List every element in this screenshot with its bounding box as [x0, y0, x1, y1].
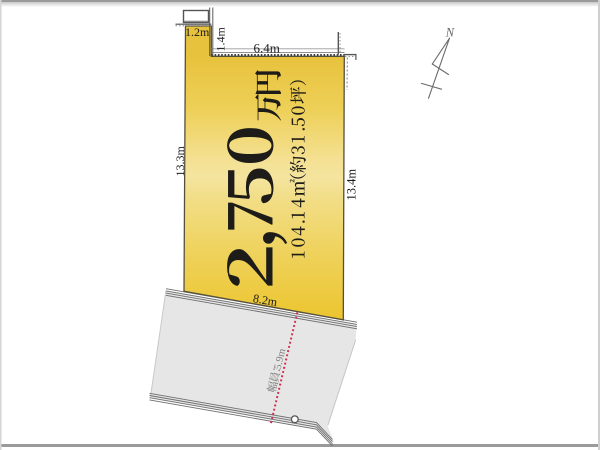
svg-text:13.4m: 13.4m: [345, 169, 359, 201]
svg-text:13.3m: 13.3m: [173, 146, 187, 177]
svg-text:1.4m: 1.4m: [214, 27, 228, 52]
svg-text:1.2m: 1.2m: [185, 25, 210, 39]
svg-text:N: N: [445, 25, 455, 39]
svg-text:6.4m: 6.4m: [254, 41, 280, 56]
